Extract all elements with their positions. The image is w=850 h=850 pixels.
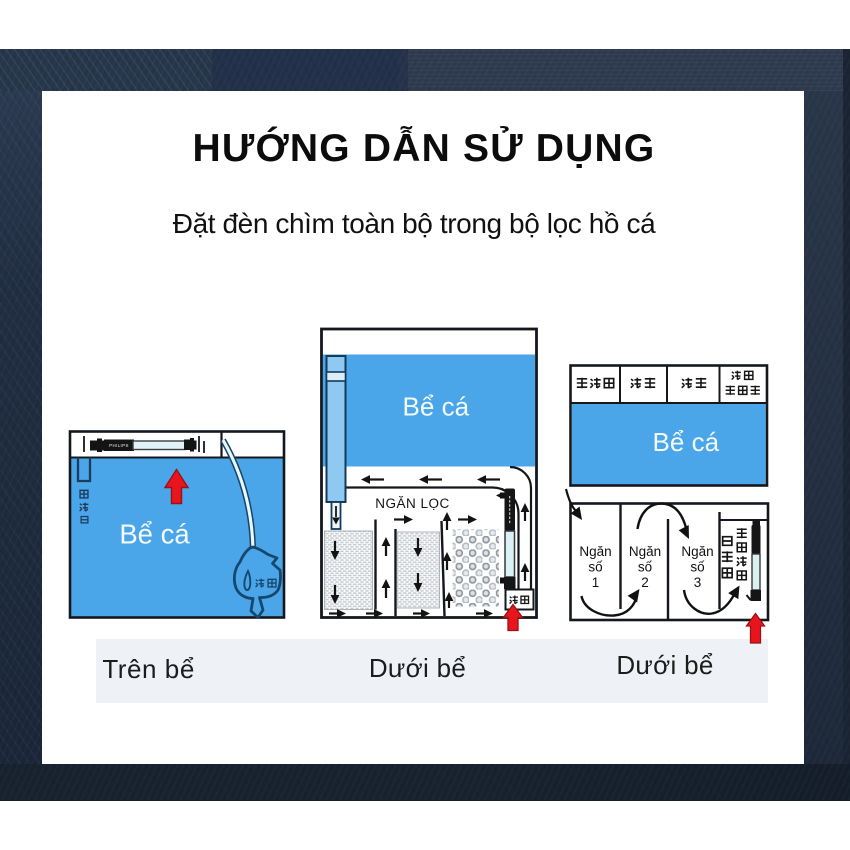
svg-text:số: số (588, 560, 603, 575)
svg-text:Đặt đèn chìm toàn bộ trong bộ: Đặt đèn chìm toàn bộ trong bộ lọc hồ cá (173, 208, 656, 239)
svg-text:Dưới bể: Dưới bể (369, 653, 466, 683)
svg-text:Bể cá: Bể cá (653, 427, 720, 457)
svg-text:3: 3 (694, 575, 702, 590)
svg-text:Bể cá: Bể cá (119, 519, 190, 550)
svg-text:số: số (690, 560, 705, 575)
svg-text:Ngăn: Ngăn (579, 544, 611, 559)
svg-text:PHILIPS: PHILIPS (109, 443, 129, 448)
svg-text:Ngăn: Ngăn (629, 544, 661, 559)
svg-text:Ngăn: Ngăn (681, 544, 713, 559)
svg-text:Dưới bể: Dưới bể (616, 650, 713, 680)
svg-text:Bể cá: Bể cá (403, 391, 470, 421)
svg-text:1: 1 (592, 575, 600, 590)
svg-text:số: số (638, 560, 653, 575)
svg-text:Trên bể: Trên bể (102, 654, 195, 684)
svg-text:NGĂN LỌC: NGĂN LỌC (375, 496, 450, 511)
svg-text:2: 2 (641, 575, 649, 590)
svg-text:HƯỚNG DẪN SỬ DỤNG: HƯỚNG DẪN SỬ DỤNG (193, 126, 656, 170)
